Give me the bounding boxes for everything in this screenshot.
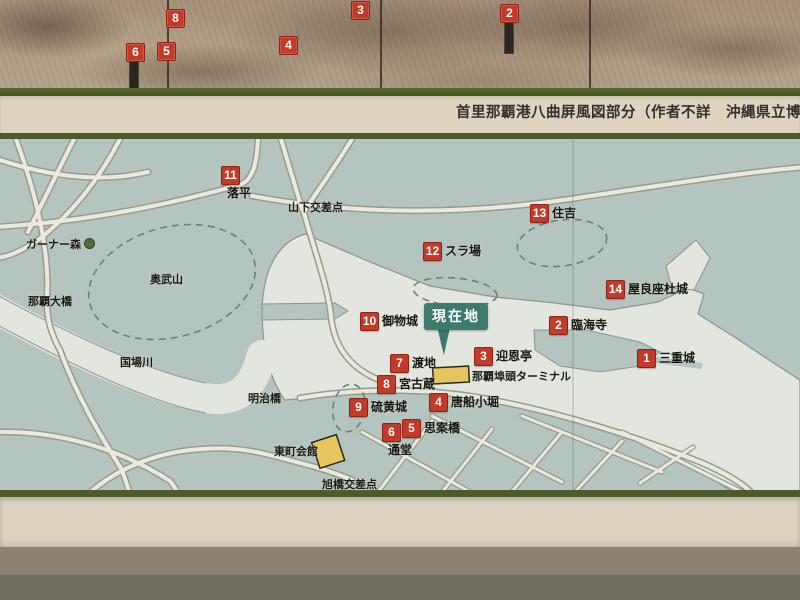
marker-number: 6 — [382, 423, 401, 442]
map-marker-10: 10御物城 — [360, 312, 418, 331]
map-marker-5: 5思案橋 — [402, 419, 460, 438]
marker-label: 硫黄城 — [371, 398, 407, 416]
current-location-badge: 現在地 — [424, 303, 488, 330]
marker-number: 5 — [402, 419, 421, 438]
map-marker-11: 11落平 — [221, 166, 240, 185]
marker-number: 10 — [360, 312, 379, 331]
map-marker-7: 7渡地 — [390, 354, 436, 373]
marker-number: 8 — [377, 375, 396, 394]
label-kokuba-river: 国場川 — [120, 354, 153, 370]
stone-wall-upper — [0, 547, 800, 575]
label-yamashita-crossing: 山下交差点 — [288, 199, 343, 215]
map-border-bottom — [0, 490, 800, 497]
marker-label: 御物城 — [382, 312, 418, 330]
marker-label: 住吉 — [552, 204, 576, 222]
label-higashimachi-hall: 東町会館 — [274, 443, 318, 459]
marker-number: 13 — [530, 204, 549, 223]
map-marker-12: 12スラ場 — [423, 242, 481, 261]
marker-label: 屋良座杜城 — [628, 280, 688, 298]
water-river — [0, 305, 262, 399]
marker-label: スラ場 — [445, 242, 481, 260]
map-marker-6: 6通堂 — [382, 423, 401, 442]
screen-fold-line — [589, 0, 591, 90]
byobu-painting: 8 6 5 4 3 2 — [0, 0, 800, 90]
marker-label: 臨海寺 — [571, 316, 607, 334]
tree-icon — [84, 238, 95, 249]
painting-marker-8: 8 — [166, 9, 185, 28]
painting-grass-band — [0, 88, 800, 96]
map-marker-2: 2臨海寺 — [549, 316, 607, 335]
map-marker-14: 14屋良座杜城 — [606, 280, 688, 299]
marker-number: 1 — [637, 349, 656, 368]
label-naha-wharf-terminal: 那覇埠頭ターミナル — [472, 368, 571, 384]
board-frame-bottom — [0, 497, 800, 547]
marker-label: 三重城 — [659, 349, 695, 367]
marker-number: 3 — [474, 347, 493, 366]
screen-fold-line — [380, 0, 382, 90]
painting-marker-6: 6 — [126, 43, 145, 62]
marker-number: 12 — [423, 242, 442, 261]
marker-number: 2 — [549, 316, 568, 335]
marker-label: 宮古蔵 — [399, 375, 435, 393]
marker-number: 11 — [221, 166, 240, 185]
caption-band: 首里那覇港八曲屏風図部分（作者不詳 沖縄県立博物館蔵 — [0, 96, 800, 133]
marker-number: 9 — [349, 398, 368, 417]
label-naha-ohashi: 那覇大橋 — [28, 293, 72, 309]
painting-marker-4: 4 — [279, 36, 298, 55]
marker-label: 迎恩亭 — [496, 347, 532, 365]
marker-number: 4 — [429, 393, 448, 412]
map-marker-9: 9硫黄城 — [349, 398, 407, 417]
marker-number: 7 — [390, 354, 409, 373]
marker-label: 通堂 — [388, 441, 412, 459]
marker-label: 落平 — [227, 184, 251, 202]
map-marker-3: 3迎恩亭 — [474, 347, 532, 366]
marker-label: 思案橋 — [424, 419, 460, 437]
marker-number: 14 — [606, 280, 625, 299]
terminal-building — [433, 366, 470, 384]
map-marker-1: 1三重城 — [637, 349, 695, 368]
painting-caption: 首里那覇港八曲屏風図部分（作者不詳 沖縄県立博物館蔵 — [456, 101, 800, 122]
painting-tag — [504, 22, 514, 54]
map-marker-8: 8宮古蔵 — [377, 375, 435, 394]
stone-wall-lower — [0, 575, 800, 600]
label-gahna-mori: ガーナー森 — [26, 236, 81, 252]
marker-label: 唐船小堀 — [451, 393, 499, 411]
label-asahibashi-crossing: 旭橋交差点 — [322, 476, 377, 492]
land-pier-omonogusuku — [262, 303, 348, 320]
painting-marker-2: 2 — [500, 4, 519, 23]
painting-marker-5: 5 — [157, 42, 176, 61]
marker-label: 渡地 — [412, 354, 436, 372]
map-marker-13: 13住吉 — [530, 204, 576, 223]
label-meiji-bridge: 明治橋 — [248, 390, 281, 406]
map-marker-4: 4唐船小堀 — [429, 393, 499, 412]
painting-marker-3: 3 — [351, 1, 370, 20]
map-sign-photo: 8 6 5 4 3 2 首里那覇港八曲屏風図部分（作者不詳 沖縄県立博物館蔵 — [0, 0, 800, 600]
label-onoyama: 奥武山 — [150, 271, 183, 287]
